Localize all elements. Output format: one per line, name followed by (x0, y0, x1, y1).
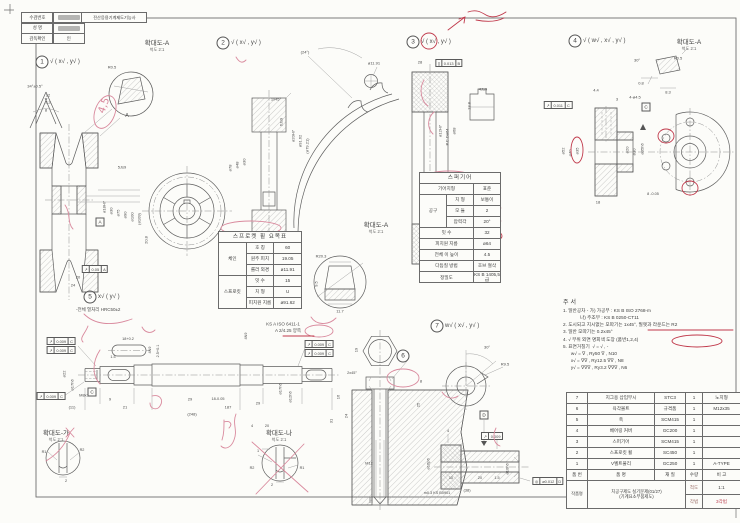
parts-list-cell: 4 (567, 426, 588, 437)
parts-list-cell: 규격품 (655, 404, 686, 415)
gdt-frame: ◎ø0.012D (532, 477, 563, 485)
dim-label: 4.4 (593, 88, 599, 93)
gdt-frame: ↗0.05A (82, 265, 108, 273)
spec-value: ø64 (474, 239, 501, 250)
spec-label: 압력각 (447, 217, 474, 228)
spec-label: 잇 수 (420, 228, 474, 239)
sprocket-spec-table: 스프로켓 휠 요목표체인호 칭60원주 피치19.05롤러 외경ø11.91스프… (218, 231, 302, 309)
gdt-cell: 0.009 (54, 347, 68, 353)
parts-list-cell: 1 (686, 404, 703, 415)
dim-label: ø22 (62, 371, 67, 378)
detail-view-title: 확대도-가척도 2:1 (43, 427, 69, 443)
dim-label: 29 (188, 397, 192, 402)
parts-list-cell: 1 (686, 415, 703, 426)
parts-list-cell: SCM415 (655, 415, 686, 426)
gdt-cell: C (564, 102, 571, 108)
notes-title: 주서 (563, 297, 739, 306)
spec-value: 32 (474, 228, 501, 239)
datum-flag: C (642, 103, 651, 112)
datum-flag: C (88, 388, 97, 397)
dim-label: 29 (256, 401, 260, 406)
dim-label: M12 (365, 461, 373, 466)
heat-treatment-note: -전체 열처리 HRC50±2 (76, 307, 120, 313)
dim-label: 8 -0.05 (647, 192, 659, 196)
dim-label: R1 (42, 450, 47, 454)
spec-group: 체인 (219, 243, 247, 276)
spec-label: 정밀도 (420, 272, 474, 283)
gdt-cell: D (556, 478, 563, 484)
spec-label: 치 형 (447, 195, 474, 206)
dim-label: 11.7 (336, 309, 344, 314)
dim-label: 20 (478, 476, 482, 480)
gdt-cell: ø0.012 (540, 478, 556, 484)
gdt-frame: ↗0.009C (47, 346, 76, 354)
parts-list-cell: STC3 (655, 393, 686, 404)
gdt-cell: C (326, 350, 333, 356)
dim-label: 4N9 (244, 333, 248, 340)
dim-label: 18 (596, 200, 600, 205)
dim-label: ø10h6 (505, 463, 510, 474)
dim-label: 8.3 (665, 90, 671, 95)
dim-label: (ø109) (137, 213, 142, 225)
dim-label: (24°) (301, 50, 310, 55)
notes-lines: 1. 일반공차 - 가) 가공부 : KS B ISO 2768-m 나) 주조… (563, 307, 739, 371)
gear-spec-table: 스퍼기어기어치형표준공구치 형보통이모 듈2압력각20°잇 수32피치원 지름ø… (419, 172, 501, 283)
dim-label: 4-ø4.5 (629, 95, 641, 100)
parts-list-cell: GC250 (655, 459, 686, 470)
dim-label: 10 (449, 476, 453, 480)
dim-label: 30° (634, 58, 640, 63)
parts-list-cell: 노치형 (703, 393, 740, 404)
dim-label: ø30 (242, 159, 247, 166)
spec-group: 공구 (420, 195, 447, 228)
datum-flag: D (480, 411, 489, 420)
detail-title-text: 확대도-A (145, 37, 169, 47)
detail-title-text: 확대도-가 (43, 427, 69, 437)
spec-value: ø11.91 (274, 265, 302, 276)
gdt-cell: C (68, 347, 75, 353)
gear-spec-table-title: 스퍼기어 (420, 173, 501, 184)
part-balloon-2: 2 (217, 37, 230, 50)
dim-label: ø75 (116, 210, 121, 217)
spec-value: 60 (274, 243, 302, 254)
spec-value: ø91.62 (274, 298, 302, 309)
parts-list-header: 품 명 (588, 470, 655, 481)
dim-label: R20.3 (316, 254, 327, 259)
dim-label: 19 (354, 348, 359, 352)
dim-label: ø12h6 (288, 391, 293, 402)
dim-label: ø78 (228, 165, 233, 172)
drawing-sheet: 수검번호성 명감독확인인 전산응용기계제도기능사 34°±0.5°123.28A… (0, 0, 740, 523)
gdt-cell: 0.011 (551, 102, 564, 108)
dim-label: 1.5 (494, 476, 499, 480)
dim-label: ø17h6 (70, 379, 75, 390)
parts-list-cell: SCM415 (655, 437, 686, 448)
part-balloon-7: 7 (431, 320, 444, 333)
detail-scale-text: 척도 2:1 (677, 46, 701, 52)
surface-finish-note: √ ( w√ , x√ , y√ ) (583, 38, 626, 44)
parts-list-table: 7지그용 삽입부시STC31노치형6육각볼트규격품1M12x355축SCM415… (566, 392, 740, 509)
dim-label: ø40 (568, 150, 573, 157)
parts-list-cell (703, 426, 740, 437)
dim-label: A 2/4.25 양쪽 (275, 328, 301, 334)
dim-label: ø17h6 (278, 383, 283, 394)
detail-title-text: 확대도-나 (266, 427, 292, 437)
dim-label: (248) (187, 412, 196, 417)
dim-label: ø30 (632, 149, 637, 156)
gdt-frame: ↗0.009C (305, 340, 334, 348)
parts-list-cell: 5 (567, 415, 588, 426)
spec-value: 표준 (474, 184, 501, 195)
dim-label: 2 (65, 479, 67, 483)
spec-value: 19.05 (274, 254, 302, 265)
parts-list-cell: 1 (686, 459, 703, 470)
spec-label: 전체 이 높이 (420, 250, 474, 261)
dim-label: 20 (76, 275, 80, 280)
parts-list-cell: 6 (567, 404, 588, 415)
dim-label: 4N9 (148, 347, 152, 354)
dim-label: 2.5+0.1 (156, 345, 160, 358)
surface-finish-note: √ ( x√ , y√ ) (50, 59, 80, 65)
projection-label: 각법 (686, 495, 703, 509)
detail-title-text: 확대도-A (364, 219, 388, 229)
dim-label: ø52 (561, 148, 566, 155)
gdt-cell: C (326, 341, 333, 347)
spec-label: 피치원 지름 (246, 298, 274, 309)
parts-list-cell: 1 (686, 437, 703, 448)
dim-label: 4 (447, 429, 449, 433)
surface-finish-note: x√ ( y√ ) (98, 294, 120, 300)
dim-label: ø48 (235, 162, 240, 169)
parts-list-cell: 1 (686, 426, 703, 437)
spec-label: 치 형 (246, 287, 274, 298)
parts-list-cell: A-TYPE (703, 459, 740, 470)
parts-list-cell: 스퍼기어 (588, 437, 655, 448)
dim-label: 30° (484, 345, 490, 350)
spec-label: 기어치형 (420, 184, 474, 195)
gdt-frame: ↗0.009 (481, 432, 503, 440)
dim-label: 8 (45, 108, 47, 113)
dim-label: 28 (418, 60, 422, 65)
detail-view-title: 확대도-나척도 2:1 (266, 427, 292, 443)
surface-finish-note: √ ( x√ , y√ ) (231, 40, 261, 46)
sprocket-spec-table-title: 스프로켓 휠 요목표 (219, 232, 302, 243)
work-title: 치공구제도 실기문제(01/27)(기계요소부품제도) (588, 481, 686, 509)
dim-label: ø18H7 (102, 201, 107, 213)
detail-scale-text: 척도 2:1 (145, 47, 169, 53)
gdt-frame: ↗0.009C (305, 349, 334, 357)
dim-label: 3 (616, 97, 618, 102)
dim-label: ø20H7 (291, 130, 296, 142)
parts-list-cell: SC450 (655, 448, 686, 459)
parts-list-header: 품 번 (567, 470, 588, 481)
dim-label: ø16p6 (426, 458, 431, 469)
gdt-cell: 0.009 (44, 393, 58, 399)
spec-value: 4.5 (474, 250, 501, 261)
spec-label: 롤러 외경 (246, 265, 274, 276)
dim-label: 5Js9 (118, 165, 126, 170)
dim-label: 9.5 (314, 281, 319, 287)
dim-label: 4Js9 (479, 87, 487, 92)
dim-label: 3.2 (45, 100, 51, 105)
dim-label: 1.5 (110, 355, 115, 359)
gdt-cell: 0.05 (89, 266, 101, 272)
detail-scale-text: 척도 2:1 (364, 229, 388, 235)
dim-label: ø35 (575, 148, 580, 155)
dim-label: ø68 (452, 128, 457, 135)
parts-list-cell: V벨트풀리 (588, 459, 655, 470)
dim-label: ø90 (123, 212, 128, 219)
dim-label: ø100 (130, 212, 135, 221)
dim-label: R2 (250, 466, 255, 470)
dim-label: R0.5 (108, 65, 116, 70)
spec-group: 스프로킷 (219, 276, 247, 309)
gdt-cell: B (455, 60, 462, 66)
surface-finish-note: √ ( x√ , y√ ) (421, 39, 451, 45)
gdt-cell: 0.013 (441, 60, 455, 66)
parts-list-cell: GC200 (655, 426, 686, 437)
spec-label: 잇 수 (246, 276, 274, 287)
scale-value: 1:1 (703, 481, 740, 495)
parts-list-cell: 1 (686, 393, 703, 404)
spec-value: U (274, 287, 302, 298)
dim-label: ø35h6 (640, 143, 645, 154)
parts-list-cell: 1 (567, 459, 588, 470)
parts-list-cell (703, 415, 740, 426)
gdt-cell: 0.009 (312, 341, 326, 347)
parts-list-cell: 축 (588, 415, 655, 426)
datum-flag: A (96, 218, 105, 227)
gdt-cell: 0.009 (312, 350, 326, 356)
parts-list-header: 비 고 (703, 470, 740, 481)
dim-label: 24 (71, 283, 75, 288)
dim-label: 18-0.05 (212, 397, 225, 401)
dim-label: 13.8 (467, 102, 472, 110)
parts-list-cell: M12x35 (703, 404, 740, 415)
dim-label: 187 (225, 405, 232, 410)
dim-label: ø30 (109, 208, 114, 215)
dim-label: 12 (46, 93, 50, 98)
spec-value: 15 (274, 276, 302, 287)
dim-label: A (125, 113, 128, 119)
spec-value: 호브 절삭 (474, 261, 501, 272)
dim-label: 18+0.2 (122, 337, 134, 341)
dim-label: 2x45° (347, 371, 357, 375)
dim-label: ø91.62 (298, 135, 303, 147)
spec-value: KS B 1405,5급 (474, 272, 501, 283)
parts-list-cell: 베어링 커버 (588, 426, 655, 437)
parts-list-header: 수량 (686, 470, 703, 481)
spec-value: 2 (474, 206, 501, 217)
spec-value: 20° (474, 217, 501, 228)
dim-label: 20.8 (144, 236, 149, 244)
detail-title-text: 확대도-A (677, 36, 701, 46)
parts-list-cell: 1 (686, 448, 703, 459)
gdt-cell: C (68, 338, 75, 344)
part-balloon-6: 6 (397, 350, 410, 363)
dim-label: ø11.91 (368, 61, 380, 66)
scale-label: 척도 (686, 481, 703, 495)
dim-label: 1 (257, 449, 259, 453)
dim-label: 1x45° (271, 97, 281, 102)
gdt-cell: 0.009 (54, 338, 68, 344)
dim-label: R0.5 (674, 56, 682, 61)
detail-view-title: 확대도-A척도 2:1 (145, 37, 169, 53)
dim-label: ø12H7 (438, 125, 443, 137)
dim-label: 25 (416, 403, 421, 407)
surface-finish-note: w√ ( x√ , y√ ) (445, 323, 479, 329)
dim-label: 6Js9 (279, 118, 284, 126)
part-balloon-1: 1 (36, 56, 49, 69)
gdt-frame: ↗0.011C (544, 101, 573, 109)
parts-list-header: 재 질 (655, 470, 686, 481)
gdt-cell: 0.009 (488, 433, 502, 439)
dim-label: m0.3 KS B0901 (424, 491, 451, 495)
dim-label: KS A ISO 6411-1 (266, 322, 300, 327)
parts-list-cell: 지그용 삽입부시 (588, 393, 655, 404)
spec-label: 모 듈 (447, 206, 474, 217)
part-balloon-3: 3 (407, 36, 420, 49)
gdt-frame: ↗0.009C (37, 392, 66, 400)
dim-label: 2 (271, 483, 273, 487)
dim-label: (38) (463, 488, 470, 493)
dim-label: 16 (336, 395, 341, 399)
parts-list-cell (703, 437, 740, 448)
dim-label: ø20 (625, 147, 630, 154)
spec-label: 다듬질 방법 (420, 261, 474, 272)
projection-value: 3각법 (703, 495, 740, 509)
detail-scale-text: 척도 2:1 (43, 437, 69, 443)
parts-list-cell: 육각볼트 (588, 404, 655, 415)
dim-label: 0.8 (638, 81, 644, 86)
dim-label: 21 (123, 405, 127, 410)
spec-label: 호 칭 (246, 243, 274, 254)
dim-label: 4 (251, 424, 253, 428)
gdt-cell: A (101, 266, 108, 272)
dim-label: (11) (69, 405, 76, 410)
parts-list-cell: 7 (567, 393, 588, 404)
parts-list-cell (703, 448, 740, 459)
dim-label: 34°±0.5° (27, 84, 42, 89)
dim-label: R2 (80, 448, 85, 452)
dim-label: R9.5 (501, 362, 509, 367)
dim-label: 8 (420, 379, 422, 384)
gdt-frame: ↗0.009C (47, 337, 76, 345)
detail-view-title: 확대도-A척도 2:1 (364, 219, 388, 235)
part-balloon-5: 5 (84, 291, 97, 304)
dim-label: 31 (329, 419, 334, 423)
spec-label: 원주 피치 (246, 254, 274, 265)
detail-scale-text: 척도 2:1 (266, 437, 292, 443)
dim-label: R1 (300, 466, 305, 470)
parts-list-cell: 2 (567, 448, 588, 459)
gdt-frame: ∥0.013B (435, 59, 462, 67)
detail-view-title: 확대도-A척도 2:1 (677, 36, 701, 52)
dim-label: (ø79.21) (305, 138, 310, 153)
work-title-label: 작품명 (567, 481, 588, 509)
dim-label: 9 (109, 397, 111, 402)
parts-list-cell: 3 (567, 437, 588, 448)
gdt-cell: C (58, 393, 65, 399)
notes-block: 주서 1. 일반공차 - 가) 가공부 : KS B ISO 2768-m 나)… (563, 297, 739, 371)
parts-list-cell: 스프로킷 휠 (588, 448, 655, 459)
dim-label: 24 (344, 414, 349, 418)
spec-value: 보통이 (474, 195, 501, 206)
spec-label: 피치원 지름 (420, 239, 474, 250)
part-balloon-4: 4 (569, 35, 582, 48)
dim-label: P.C.Dø64 (445, 128, 450, 145)
